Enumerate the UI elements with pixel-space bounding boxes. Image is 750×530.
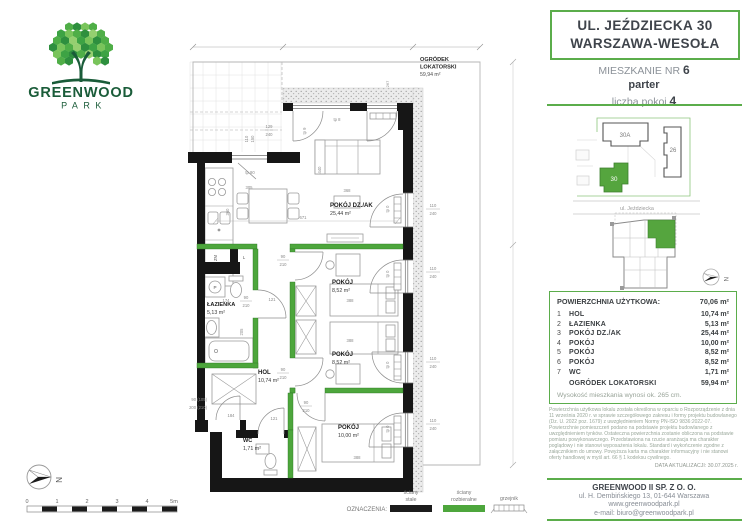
svg-text:5m: 5m: [170, 499, 178, 505]
svg-text:240: 240: [430, 211, 438, 216]
legend-demountable-wall-swatch: [443, 505, 485, 512]
table-row: 5POKÓJ8,52 m²: [557, 348, 729, 358]
area-table-header: POWIERZCHNIA UŻYTKOWA: 70,06 m²: [557, 297, 729, 306]
legend-title: OZNACZENIA:: [347, 507, 388, 513]
update-date: DATA AKTUALIZACJI: 30.07.2025 r.: [549, 463, 738, 469]
company-website[interactable]: www.greenwoodpark.pl: [547, 501, 741, 509]
svg-text:150: 150: [250, 135, 255, 143]
svg-text:5,13 m²: 5,13 m²: [207, 310, 225, 316]
kitchen-window: [232, 156, 267, 160]
unit-label: MIESZKANIE NR: [598, 65, 680, 77]
svg-text:L: L: [243, 255, 246, 260]
label-room6: POKÓJ: [332, 350, 353, 358]
svg-text:rozbieralne: rozbieralne: [451, 497, 477, 503]
svg-text:205: 205: [239, 328, 244, 336]
svg-text:200 (210): 200 (210): [189, 405, 208, 410]
label-bath: ŁAZIENKA: [207, 302, 235, 308]
svg-text:210: 210: [243, 303, 251, 308]
address-header: UL. JEŹDZIECKA 30 WARSZAWA-WESOŁA: [550, 10, 740, 60]
radiator-window4: [394, 416, 401, 444]
table-row: 7WC1,71 m²: [557, 368, 729, 378]
svg-text:tp 90: tp 90: [245, 170, 255, 175]
svg-text:388: 388: [347, 298, 355, 303]
svg-text:1: 1: [55, 499, 58, 505]
radiator-living: [370, 113, 396, 119]
area-table: POWIERZCHNIA UŻYTKOWA: 70,06 m² 1HOL10,7…: [549, 291, 737, 404]
wc-door: [258, 408, 284, 434]
svg-text:368: 368: [344, 188, 352, 193]
svg-text:240: 240: [430, 426, 438, 431]
balcony-door-4: [403, 413, 413, 447]
svg-text:3: 3: [115, 499, 118, 505]
svg-text:121: 121: [271, 416, 279, 421]
svg-text:110: 110: [430, 356, 437, 361]
area-table-title: POWIERZCHNIA UŻYTKOWA:: [557, 297, 660, 306]
desk-room5: [336, 254, 360, 276]
svg-text:90: 90: [281, 367, 286, 372]
garden-row: OGRÓDEK LOKATORSKI59,94 m²: [557, 379, 729, 389]
window1-size: 110240: [426, 203, 440, 216]
logo-tree-icon: [49, 22, 113, 84]
svg-text:ściany: ściany: [457, 490, 472, 496]
legal-disclaimer: Powierzchnia użytkowa lokalu została okr…: [549, 407, 738, 469]
svg-text:4: 4: [145, 499, 148, 505]
svg-text:110: 110: [430, 203, 437, 208]
svg-text:90: 90: [281, 254, 286, 259]
svg-text:25,44 m²: 25,44 m²: [330, 211, 351, 217]
company-address: ul. H. Dembińskiego 13, 01-644 Warszawa: [547, 493, 741, 501]
balcony-door-2: [403, 260, 413, 293]
unit-info: MIESZKANIE NR 6 parter liczba pokoi 4: [547, 62, 741, 109]
garden-label-2: LOKATORSKI: [420, 65, 457, 71]
svg-text:440: 440: [317, 166, 322, 174]
room6-door: [295, 358, 323, 386]
garden-area-value: 59,94 m²: [420, 72, 441, 78]
company-info: GREENWOOD II SP. Z O. O. ul. H. Dembińsk…: [547, 483, 741, 518]
unit-number: 6: [683, 63, 690, 77]
window4-size: 110240: [426, 418, 440, 431]
garden-dim-267: 267: [385, 80, 390, 87]
svg-text:8,52 m²: 8,52 m²: [332, 288, 350, 294]
table-row: 3POKÓJ DZ./AK25,44 m²: [557, 329, 729, 339]
desk-room6: [336, 364, 360, 384]
room4-door-size: 90210: [300, 400, 312, 413]
bath-door-size: 90210: [240, 295, 252, 308]
compass-letter: N: [54, 477, 63, 483]
radiator-window2: [394, 263, 401, 290]
svg-text:2: 2: [85, 499, 88, 505]
disclaimer-text: Powierzchnia użytkowa lokalu została okr…: [549, 407, 738, 461]
svg-text:388: 388: [347, 338, 355, 343]
window3-size: 110240: [426, 356, 440, 369]
svg-text:210: 210: [280, 375, 288, 380]
toilet-tank-bath: [229, 276, 243, 281]
svg-text:305: 305: [246, 185, 254, 190]
svg-text:tp 0: tp 0: [385, 361, 390, 369]
terrace-door-leaf-1: [293, 111, 323, 141]
svg-text:388: 388: [354, 455, 362, 460]
scale-bar: 0 1 2 3 4 5m: [25, 499, 178, 512]
svg-text:10,00 m²: 10,00 m²: [338, 433, 359, 439]
greenwood-park-logo: GREENWOOD PARK: [28, 22, 133, 110]
address-line2: WARSZAWA-WESOŁA: [552, 35, 738, 53]
radiator-window3: [394, 355, 401, 380]
svg-text:grzejnik: grzejnik: [500, 496, 518, 502]
table-row: 1HOL10,74 m²: [557, 310, 729, 320]
svg-text:240: 240: [430, 364, 438, 369]
legend-radiator-icon: [491, 505, 527, 513]
svg-text:210: 210: [280, 262, 288, 267]
svg-text:210: 210: [303, 408, 311, 413]
svg-text:90 (105): 90 (105): [191, 397, 207, 402]
room5-door-size: 90210: [277, 254, 289, 267]
svg-text:240: 240: [266, 132, 274, 137]
label-hol: HOL: [258, 370, 271, 376]
company-name: GREENWOOD II SP. Z O. O.: [547, 483, 741, 493]
svg-text:10,74 m²: 10,74 m²: [258, 378, 279, 384]
window2-size: 110240: [426, 266, 440, 279]
svg-text:1,71 m²: 1,71 m²: [243, 446, 261, 452]
svg-text:110: 110: [430, 418, 437, 423]
radiator-window1: [394, 197, 401, 223]
svg-text:tp 0: tp 0: [385, 270, 390, 278]
svg-text:184: 184: [228, 413, 236, 418]
rooms-count-line: liczba pokoi 4: [547, 93, 741, 109]
toilet-bath: [231, 283, 242, 298]
info-panel: UL. JEŹDZIECKA 30 WARSZAWA-WESOŁA MIESZK…: [547, 0, 744, 530]
svg-text:stałe: stałe: [406, 497, 417, 503]
floorplan-card-page: GREENWOOD PARK 267 240 OGRÓDEK LOKATORSK…: [0, 0, 750, 530]
balcony-door-3: [403, 352, 413, 383]
main-compass-icon: N: [27, 465, 63, 489]
svg-text:240: 240: [430, 274, 438, 279]
room5-door: [295, 252, 323, 280]
toilet-tank-wc: [264, 470, 277, 475]
svg-text:8,52 m²: 8,52 m²: [332, 360, 350, 366]
svg-text:360: 360: [225, 208, 230, 216]
rooms-label: liczba pokoi: [612, 96, 667, 108]
divider-company-top: [547, 478, 742, 480]
dining-table: [249, 189, 287, 223]
svg-text:129: 129: [266, 124, 274, 129]
terrace-glazing: [293, 106, 397, 109]
legend: OZNACZENIA: ściany stałe ściany rozbiera…: [347, 490, 527, 513]
table-row: 6POKÓJ8,52 m²: [557, 358, 729, 368]
logo-name: GREENWOOD: [28, 85, 133, 101]
table-row: 2ŁAZIENKA5,13 m²: [557, 320, 729, 330]
svg-text:0: 0: [25, 499, 28, 505]
unit-number-line: MIESZKANIE NR 6: [547, 62, 741, 78]
divider-top: [547, 104, 742, 106]
bathroom-door: [258, 290, 286, 318]
svg-text:671: 671: [300, 215, 308, 220]
unit-floor: parter: [547, 78, 741, 93]
svg-text:tp 0: tp 0: [385, 425, 390, 433]
svg-text:tp 0: tp 0: [385, 205, 390, 213]
room4-door: [297, 393, 325, 421]
balcony-door-1: [403, 193, 413, 227]
svg-text:90: 90: [244, 295, 249, 300]
svg-text:121: 121: [269, 297, 277, 302]
table-row: 4POKÓJ10,00 m²: [557, 339, 729, 349]
company-email[interactable]: e-mail: biuro@greenwoodpark.pl: [547, 510, 741, 518]
svg-text:P: P: [213, 285, 216, 290]
svg-text:ściany: ściany: [404, 490, 419, 496]
svg-text:90: 90: [304, 400, 309, 405]
svg-text:tp 8: tp 8: [334, 117, 342, 122]
label-room5: POKÓJ: [332, 278, 353, 286]
garden-label-1: OGRÓDEK: [420, 55, 449, 63]
logo-sub: PARK: [61, 101, 107, 111]
label-wc: WC: [243, 438, 252, 444]
svg-text:ZM: ZM: [213, 254, 218, 261]
address-line1: UL. JEŹDZIECKA 30: [552, 17, 738, 35]
svg-text:110: 110: [244, 135, 249, 142]
svg-text:110: 110: [430, 266, 437, 271]
area-table-total: 70,06 m²: [700, 297, 729, 306]
toilet-wc: [265, 454, 276, 469]
ceiling-height-note: Wysokość mieszkania wynosi ok. 265 cm.: [557, 392, 729, 399]
legend-solid-wall-swatch: [390, 505, 432, 512]
divider-bottom: [547, 519, 742, 521]
label-room4: POKÓJ: [338, 423, 359, 431]
label-living: POKÓJ DZ./AK: [330, 201, 373, 209]
svg-text:tp 9: tp 9: [302, 127, 307, 135]
